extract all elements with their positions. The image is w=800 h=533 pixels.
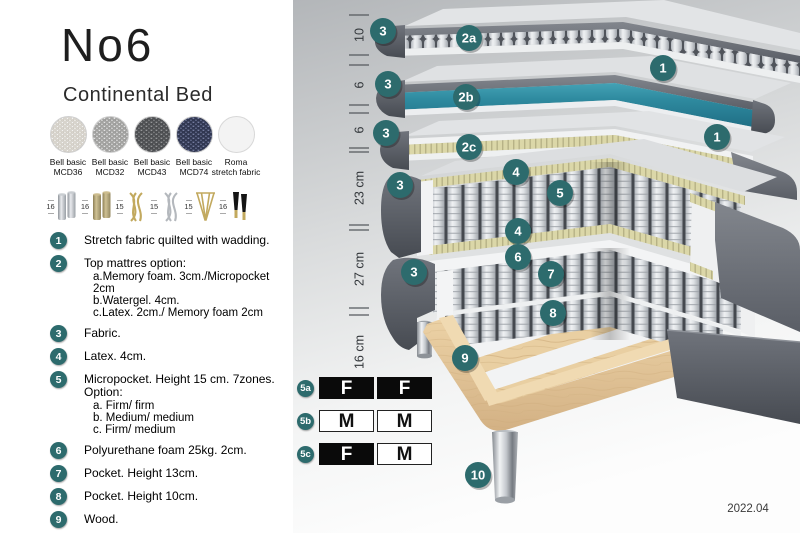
legend-sub-item: a.Memory foam. 3cm./Micropocket 2cm bbox=[93, 271, 288, 295]
legend-item: 1Stretch fabric quilted with wadding. bbox=[50, 232, 288, 249]
measure-label: 27 cm bbox=[352, 252, 366, 286]
svg-text:9: 9 bbox=[461, 351, 468, 366]
legend-item: 3Fabric. bbox=[50, 325, 288, 342]
version-stamp: 2022.04 bbox=[713, 503, 783, 515]
measure-label: 23 cm bbox=[352, 171, 366, 205]
legend-sub-item: c.Latex. 2cm./ Memory foam 2cm bbox=[93, 307, 288, 319]
leg-option: 15 bbox=[149, 186, 184, 228]
legend-number-badge: 2 bbox=[50, 255, 67, 272]
front-leg bbox=[492, 430, 518, 504]
firmness-badge-5a: 5a bbox=[297, 380, 314, 397]
legend-sub-item: c. Firm/ medium bbox=[93, 424, 288, 436]
legend-number-badge: 7 bbox=[50, 465, 67, 482]
legend-text: Pocket. Height 10cm. bbox=[67, 488, 198, 505]
legend-item: 9Wood. bbox=[50, 511, 288, 528]
leg-height: 16 bbox=[45, 200, 56, 214]
fabric-swatch-circle bbox=[50, 116, 87, 153]
twisted-silver-leg-icon bbox=[160, 190, 182, 224]
leg-option: 15 bbox=[114, 186, 149, 228]
legend-sub-item: a. Firm/ firm bbox=[93, 400, 288, 412]
fabric-swatch-label: Romastretch fabric bbox=[212, 157, 261, 177]
svg-text:3: 3 bbox=[410, 265, 417, 280]
legend-item: 5Micropocket. Height 15 cm. 7zones. Opti… bbox=[50, 371, 288, 436]
product-title: No6 bbox=[61, 18, 154, 72]
svg-text:10: 10 bbox=[471, 468, 485, 483]
svg-text:4: 4 bbox=[514, 224, 522, 239]
svg-text:7: 7 bbox=[547, 267, 554, 282]
svg-text:5: 5 bbox=[556, 186, 563, 201]
firmness-badge-5b: 5b bbox=[297, 413, 314, 430]
bed-diagram-panel: 106623 cm27 cm16 cm bbox=[293, 0, 800, 533]
svg-text:1: 1 bbox=[659, 61, 666, 76]
legend-number-badge: 6 bbox=[50, 442, 67, 459]
svg-text:2a: 2a bbox=[462, 31, 477, 46]
fabric-swatch: Bell basicMCD36 bbox=[47, 116, 89, 177]
legend-number-badge: 1 bbox=[50, 232, 67, 249]
leg-height: 16 bbox=[80, 200, 91, 214]
svg-text:4: 4 bbox=[512, 165, 520, 180]
leg-option: 16 bbox=[218, 186, 253, 228]
legend-number-badge: 9 bbox=[50, 511, 67, 528]
leg-height: 15 bbox=[149, 200, 160, 214]
leg-height-value: 16 bbox=[219, 203, 227, 211]
measure-label: 6 bbox=[352, 81, 366, 88]
firmness-badge-5c: 5c bbox=[297, 446, 314, 463]
svg-text:3: 3 bbox=[384, 77, 391, 92]
firmness-cell: F bbox=[319, 443, 374, 465]
firmness-cell: F bbox=[377, 377, 432, 399]
fabric-swatch-circle bbox=[92, 116, 129, 153]
measure-label: 10 bbox=[352, 28, 366, 42]
tapered-black-brass-leg-icon bbox=[229, 190, 251, 224]
legend-text: Wood. bbox=[67, 511, 118, 528]
svg-text:3: 3 bbox=[382, 126, 389, 141]
legend-number-badge: 5 bbox=[50, 371, 67, 388]
legend-number-badge: 8 bbox=[50, 488, 67, 505]
fabric-swatch: Bell basicMCD43 bbox=[131, 116, 173, 177]
legend-item: 2Top mattres option:a.Memory foam. 3cm./… bbox=[50, 255, 288, 319]
legend-text: Latex. 4cm. bbox=[67, 348, 146, 365]
leg-height-value: 15 bbox=[150, 203, 158, 211]
cylinder-silver-leg-icon bbox=[56, 190, 78, 224]
fabric-swatch-label: Bell basicMCD43 bbox=[134, 157, 170, 177]
fabric-swatch-circle bbox=[218, 116, 255, 153]
leg-option: 15 bbox=[183, 186, 218, 228]
leg-height-value: 16 bbox=[46, 203, 54, 211]
firmness-cell: M bbox=[319, 410, 374, 432]
svg-text:8: 8 bbox=[549, 306, 556, 321]
legend-item: 6Polyurethane foam 25kg. 2cm. bbox=[50, 442, 288, 459]
legend-item: 8Pocket. Height 10cm. bbox=[50, 488, 288, 505]
leg-options: 161615151516 bbox=[45, 186, 252, 228]
firmness-row-5a: 5a F F bbox=[297, 377, 435, 399]
leg-height: 15 bbox=[183, 200, 194, 214]
product-subtitle: Continental Bed bbox=[63, 84, 213, 107]
svg-text:3: 3 bbox=[379, 24, 386, 39]
legend-number-badge: 3 bbox=[50, 325, 67, 342]
svg-text:3: 3 bbox=[396, 178, 403, 193]
legend-number-badge: 4 bbox=[50, 348, 67, 365]
firmness-cell: F bbox=[319, 377, 374, 399]
svg-text:6: 6 bbox=[514, 250, 521, 265]
legend-text: Top mattres option:a.Memory foam. 3cm./M… bbox=[67, 255, 288, 319]
fabric-swatch-label: Bell basicMCD36 bbox=[50, 157, 86, 177]
fabric-swatch-label: Bell basicMCD32 bbox=[92, 157, 128, 177]
legend-text: Pocket. Height 13cm. bbox=[67, 465, 198, 482]
legend-sub-list: a.Memory foam. 3cm./Micropocket 2cmb.Wat… bbox=[93, 271, 288, 319]
legend-text: Stretch fabric quilted with wadding. bbox=[67, 232, 269, 249]
fabric-swatch: Bell basicMCD74 bbox=[173, 116, 215, 177]
firmness-row-5c: 5c F M bbox=[297, 443, 435, 465]
firmness-cell: M bbox=[377, 443, 432, 465]
fabric-swatch-circle bbox=[134, 116, 171, 153]
legend-list: 1Stretch fabric quilted with wadding.2To… bbox=[50, 232, 288, 533]
legend-item: 4Latex. 4cm. bbox=[50, 348, 288, 365]
leg-height-value: 15 bbox=[115, 203, 123, 211]
legend-item: 7Pocket. Height 13cm. bbox=[50, 465, 288, 482]
twisted-gold-leg-icon bbox=[125, 190, 147, 224]
legend-text: Polyurethane foam 25kg. 2cm. bbox=[67, 442, 247, 459]
fabric-swatch: Bell basicMCD32 bbox=[89, 116, 131, 177]
fabric-swatch-label: Bell basicMCD74 bbox=[176, 157, 212, 177]
leg-option: 16 bbox=[45, 186, 80, 228]
measure-label: 6 bbox=[352, 126, 366, 133]
svg-text:2c: 2c bbox=[462, 140, 476, 155]
leg-height: 15 bbox=[114, 200, 125, 214]
leg-height: 16 bbox=[218, 200, 229, 214]
hairpin-gold-leg-icon bbox=[194, 190, 216, 224]
cylinder-brass-leg-icon bbox=[91, 190, 113, 224]
fabric-swatch-circle bbox=[176, 116, 213, 153]
fabric-swatch: Romastretch fabric bbox=[215, 116, 257, 177]
leg-option: 16 bbox=[80, 186, 115, 228]
svg-text:2b: 2b bbox=[458, 90, 473, 105]
legend-sub-list: a. Firm/ firmb. Medium/ mediumc. Firm/ m… bbox=[93, 400, 288, 436]
legend-text: Micropocket. Height 15 cm. 7zones. Optio… bbox=[67, 371, 288, 436]
fabric-swatches: Bell basicMCD36Bell basicMCD32Bell basic… bbox=[47, 116, 257, 177]
firmness-cell: M bbox=[377, 410, 432, 432]
measure-label: 16 cm bbox=[352, 335, 366, 369]
leg-height-value: 15 bbox=[184, 203, 192, 211]
info-panel: No6 Continental Bed Bell basicMCD36Bell … bbox=[0, 0, 293, 533]
leg-height-value: 16 bbox=[81, 203, 89, 211]
firmness-row-5b: 5b M M bbox=[297, 410, 435, 432]
product-sheet: No6 Continental Bed Bell basicMCD36Bell … bbox=[0, 0, 800, 533]
legend-text: Fabric. bbox=[67, 325, 121, 342]
svg-text:1: 1 bbox=[713, 130, 720, 145]
legend-sub-item: b. Medium/ medium bbox=[93, 412, 288, 424]
legend-sub-item: b.Watergel. 4cm. bbox=[93, 295, 288, 307]
